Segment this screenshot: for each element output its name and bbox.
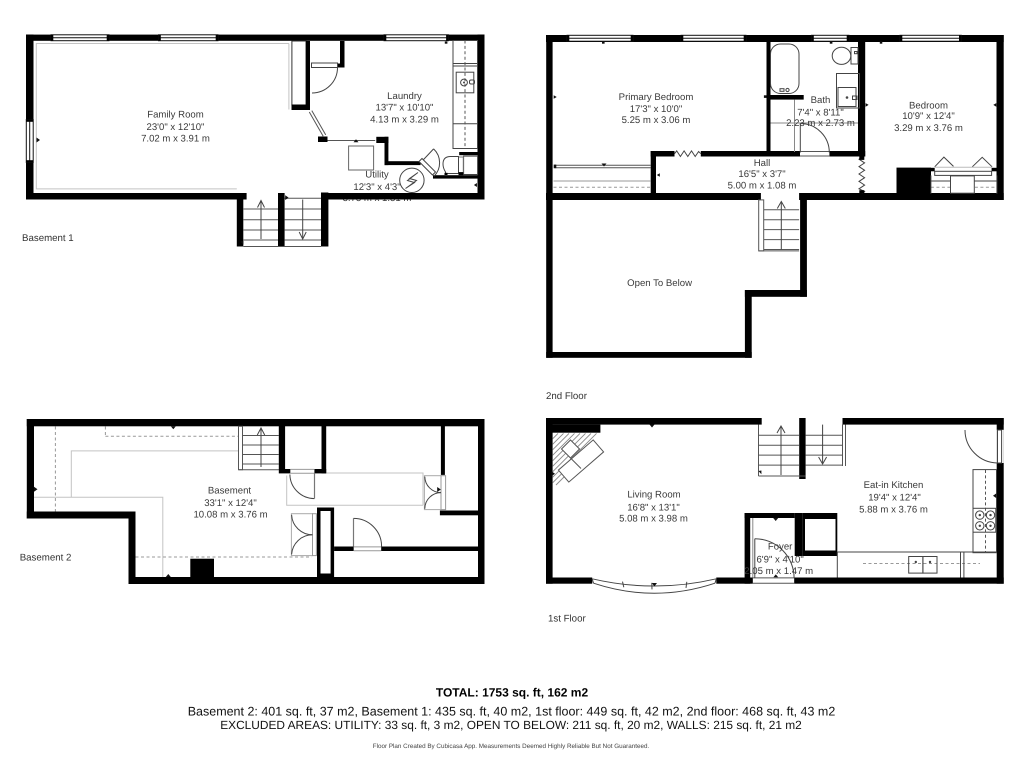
svg-text:Bedroom: Bedroom (909, 100, 948, 111)
svg-text:17'3" x 10'0": 17'3" x 10'0" (630, 104, 683, 115)
svg-text:2.23 m x 2.73 m: 2.23 m x 2.73 m (786, 118, 855, 129)
svg-text:10.08 m x 3.76 m: 10.08 m x 3.76 m (193, 510, 267, 521)
svg-text:5.88 m x 3.76 m: 5.88 m x 3.76 m (859, 505, 928, 516)
svg-text:23'0" x 12'10": 23'0" x 12'10" (147, 122, 205, 133)
svg-text:16'8" x 13'1": 16'8" x 13'1" (627, 502, 680, 513)
svg-text:EXCLUDED AREAS: UTILITY: 33 sq: EXCLUDED AREAS: UTILITY: 33 sq. ft, 3 m2… (220, 718, 802, 732)
svg-text:16'5" x 3'7": 16'5" x 3'7" (738, 169, 785, 180)
svg-text:7'4" x 8'11": 7'4" x 8'11" (797, 107, 844, 118)
svg-text:Open To Below: Open To Below (627, 278, 692, 289)
svg-text:Basement 2: 401 sq. ft, 37 m2,: Basement 2: 401 sq. ft, 37 m2, Basement … (188, 705, 836, 719)
svg-text:Living Room: Living Room (627, 490, 680, 501)
svg-text:6'9" x 4'10": 6'9" x 4'10" (756, 554, 803, 565)
svg-text:12'3" x 4'3": 12'3" x 4'3" (353, 182, 400, 193)
svg-text:1st Floor: 1st Floor (548, 614, 586, 625)
svg-text:Basement 2: Basement 2 (20, 553, 72, 564)
svg-text:Basement: Basement (208, 486, 252, 497)
svg-text:10'9" x 12'4": 10'9" x 12'4" (902, 111, 955, 122)
svg-text:5.25 m x 3.06 m: 5.25 m x 3.06 m (622, 115, 691, 126)
svg-text:Hall: Hall (754, 158, 771, 169)
svg-text:Family Room: Family Room (147, 110, 204, 121)
svg-text:5.08 m x 3.98 m: 5.08 m x 3.98 m (619, 513, 688, 524)
svg-text:13'7" x 10'10": 13'7" x 10'10" (376, 103, 434, 114)
svg-text:Foyer: Foyer (768, 542, 793, 553)
svg-text:3.29 m x 3.76 m: 3.29 m x 3.76 m (894, 123, 963, 134)
svg-text:Laundry: Laundry (387, 91, 422, 102)
svg-text:4.13 m x 3.29 m: 4.13 m x 3.29 m (370, 115, 439, 126)
svg-text:Floor Plan Created By Cubicasa: Floor Plan Created By Cubicasa App. Meas… (373, 743, 650, 750)
svg-text:19'4" x 12'4": 19'4" x 12'4" (868, 493, 921, 504)
svg-text:Primary Bedroom: Primary Bedroom (619, 92, 694, 103)
svg-text:Utility: Utility (365, 170, 389, 181)
svg-text:2nd Floor: 2nd Floor (546, 391, 588, 402)
svg-text:5.00 m x 1.08 m: 5.00 m x 1.08 m (728, 181, 797, 192)
svg-text:Bath: Bath (811, 95, 831, 106)
svg-text:Basement 1: Basement 1 (22, 233, 74, 244)
svg-text:7.02 m x 3.91 m: 7.02 m x 3.91 m (141, 133, 210, 144)
svg-text:Eat-in Kitchen: Eat-in Kitchen (864, 480, 924, 491)
svg-text:2.05 m x 1.47 m: 2.05 m x 1.47 m (744, 566, 813, 577)
svg-text:TOTAL: 1753 sq. ft, 162 m2: TOTAL: 1753 sq. ft, 162 m2 (436, 686, 589, 700)
svg-text:33'1" x 12'4": 33'1" x 12'4" (204, 498, 257, 509)
